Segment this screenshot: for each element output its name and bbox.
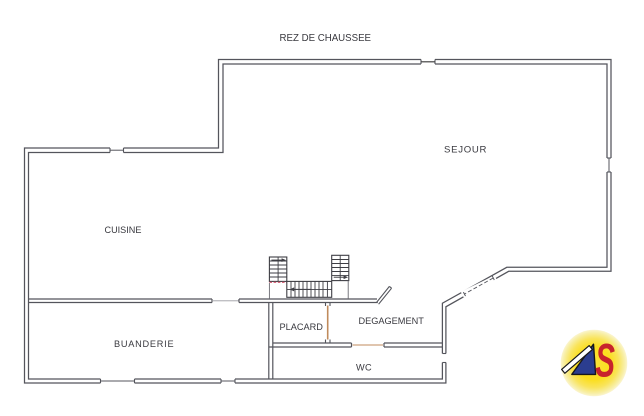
svg-text:S: S: [595, 335, 615, 388]
svg-text:CUISINE: CUISINE: [105, 225, 142, 235]
svg-text:PLACARD: PLACARD: [280, 322, 324, 332]
svg-text:WC: WC: [356, 363, 372, 373]
svg-text:BUANDERIE: BUANDERIE: [114, 339, 174, 349]
svg-text:REZ DE CHAUSSEE: REZ DE CHAUSSEE: [280, 33, 372, 44]
svg-text:SEJOUR: SEJOUR: [444, 145, 487, 156]
svg-text:DEGAGEMENT: DEGAGEMENT: [359, 316, 425, 326]
